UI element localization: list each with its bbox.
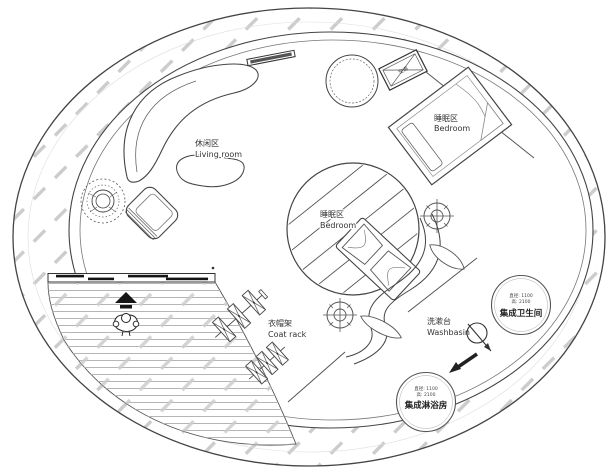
coat-rack-label-zh: 衣帽架 — [268, 318, 292, 328]
washbasin-label-zh: 洗漱台 — [427, 316, 451, 326]
floor-plan-drawing: 空调 睡眠区 Bedroom 睡眠区 Bedroom — [0, 0, 611, 473]
window-wall — [48, 274, 215, 283]
shower-pod-name: 集成淋浴房 — [404, 400, 448, 411]
bathroom-pod-height: 高: 2100 — [512, 298, 531, 305]
bathroom-pod: 直径: 1100 高: 2100 集成卫生间 — [492, 276, 551, 335]
shower-pod: 直径: 1100 高: 2100 集成淋浴房 — [397, 373, 456, 432]
shower-pod-diameter: 直径: 1100 — [414, 385, 438, 392]
bedroom-upper-label-en: Bedroom — [434, 124, 470, 133]
floor-plan-canvas: 空调 睡眠区 Bedroom 睡眠区 Bedroom — [0, 0, 611, 473]
bathroom-pod-name: 集成卫生间 — [499, 308, 543, 319]
round-table — [326, 55, 378, 107]
living-room-label-en: Living room — [195, 150, 242, 159]
living-room-label-zh: 休闲区 — [195, 138, 219, 148]
coffee-table — [177, 155, 245, 186]
coat-rack-label-en: Coat rack — [268, 330, 307, 339]
washbasin-label-en: Washbasin — [427, 328, 470, 337]
bathroom-pod-diameter: 直径: 1100 — [509, 292, 533, 299]
shower-pod-height: 高: 2100 — [417, 391, 436, 398]
dot-mark — [212, 267, 215, 270]
bedroom-upper-label-zh: 睡眠区 — [434, 114, 458, 123]
bedroom-center-label-en: Bedroom — [320, 221, 356, 230]
bedroom-center-label-zh: 睡眠区 — [320, 210, 344, 219]
